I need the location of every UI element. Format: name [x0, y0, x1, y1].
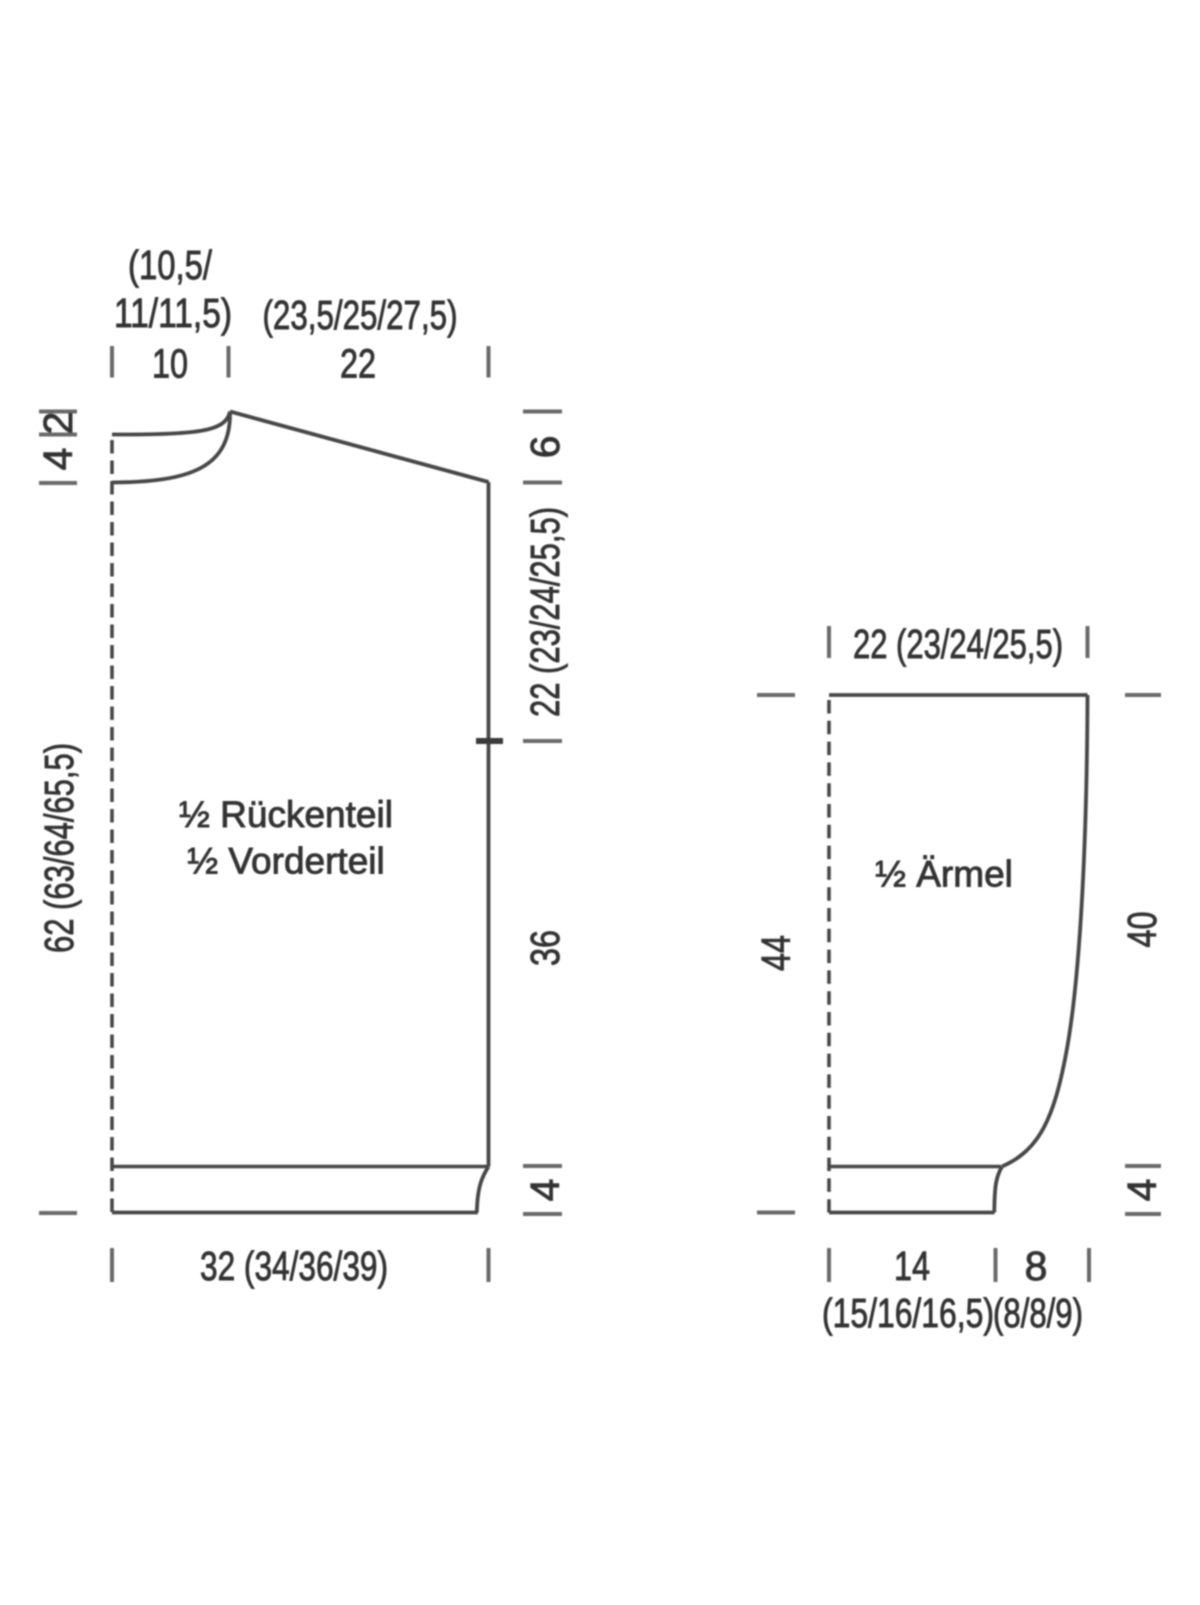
svg-text:11/11,5): 11/11,5): [114, 290, 232, 336]
svg-text:½ Ärmel: ½ Ärmel: [875, 854, 1013, 895]
svg-text:½ Vorderteil: ½ Vorderteil: [187, 841, 384, 882]
svg-text:(10,5/: (10,5/: [128, 242, 212, 288]
svg-text:22 (23/24/25,5): 22 (23/24/25,5): [522, 507, 568, 717]
svg-text:32 (34/36/39): 32 (34/36/39): [200, 1243, 388, 1289]
svg-text:½ Rückenteil: ½ Rückenteil: [179, 794, 393, 835]
svg-text:4: 4: [1119, 1179, 1165, 1202]
svg-text:8: 8: [1025, 1243, 1048, 1289]
svg-text:22 (23/24/25,5): 22 (23/24/25,5): [853, 621, 1063, 667]
svg-text:14: 14: [894, 1243, 930, 1289]
svg-text:(15/16/16,5): (15/16/16,5): [822, 1290, 994, 1336]
svg-text:(23,5/25/27,5): (23,5/25/27,5): [263, 292, 458, 338]
svg-text:(8/8/9): (8/8/9): [993, 1290, 1083, 1336]
svg-text:10: 10: [152, 341, 188, 387]
svg-text:4: 4: [522, 1179, 568, 1202]
svg-text:2: 2: [35, 412, 81, 435]
svg-text:4: 4: [35, 448, 81, 471]
svg-text:44: 44: [753, 935, 799, 971]
svg-text:22: 22: [340, 341, 376, 387]
svg-text:36: 36: [522, 930, 568, 966]
svg-text:62 (63/64/65,5): 62 (63/64/65,5): [36, 743, 82, 953]
svg-text:6: 6: [522, 436, 568, 459]
svg-text:40: 40: [1119, 912, 1165, 948]
